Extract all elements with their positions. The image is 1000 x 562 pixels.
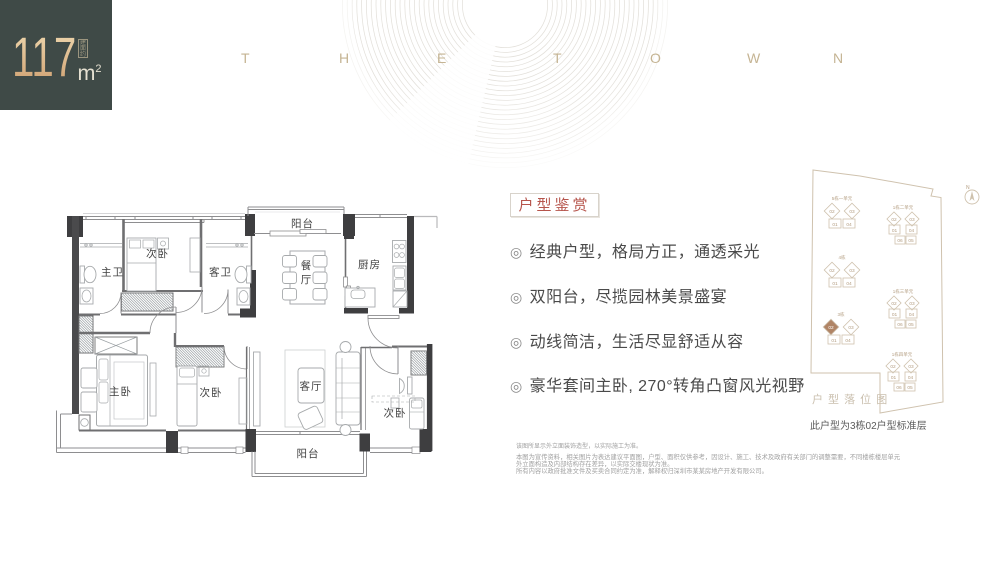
svg-text:厨房: 厨房	[358, 258, 381, 271]
svg-text:02: 02	[829, 268, 835, 274]
svg-text:1栋四单元: 1栋四单元	[892, 351, 913, 358]
svg-text:02: 02	[891, 217, 897, 223]
svg-text:4栋: 4栋	[838, 254, 846, 261]
svg-text:06: 06	[897, 238, 903, 244]
svg-text:主卧: 主卧	[109, 385, 132, 398]
svg-text:05: 05	[908, 238, 914, 244]
svg-text:5栋一单元: 5栋一单元	[832, 195, 853, 202]
svg-text:1栋二单元: 1栋二单元	[893, 204, 914, 211]
svg-text:04: 04	[846, 222, 852, 228]
svg-text:04: 04	[846, 281, 852, 287]
svg-text:01: 01	[831, 338, 837, 344]
svg-text:04: 04	[909, 228, 915, 234]
svg-text:05: 05	[907, 385, 913, 391]
svg-text:客卫: 客卫	[209, 266, 232, 279]
svg-text:厅: 厅	[301, 274, 312, 286]
svg-text:02: 02	[829, 209, 835, 215]
svg-text:06: 06	[897, 322, 903, 328]
svg-text:05: 05	[908, 322, 914, 328]
svg-text:03: 03	[909, 217, 915, 223]
svg-text:01: 01	[891, 375, 897, 381]
svg-text:餐: 餐	[301, 259, 312, 272]
svg-text:1栋三单元: 1栋三单元	[893, 288, 914, 295]
svg-text:次卧: 次卧	[384, 407, 407, 420]
svg-text:02: 02	[828, 325, 834, 331]
svg-text:04: 04	[845, 338, 851, 344]
svg-text:03: 03	[909, 301, 915, 307]
svg-text:06: 06	[896, 385, 902, 391]
svg-text:04: 04	[908, 375, 914, 381]
svg-text:阳台: 阳台	[297, 447, 320, 460]
svg-text:02: 02	[891, 301, 897, 307]
svg-text:客厅: 客厅	[300, 380, 323, 393]
svg-text:主卫: 主卫	[101, 267, 124, 279]
svg-text:03: 03	[908, 364, 914, 370]
svg-text:02: 02	[890, 364, 896, 370]
svg-text:03: 03	[848, 325, 854, 331]
svg-text:03: 03	[849, 268, 855, 274]
svg-text:01: 01	[892, 312, 898, 318]
svg-text:N: N	[966, 185, 970, 191]
svg-text:04: 04	[909, 312, 915, 318]
svg-text:次卧: 次卧	[146, 247, 169, 260]
svg-text:01: 01	[892, 228, 898, 234]
svg-text:3栋: 3栋	[837, 311, 845, 318]
svg-text:03: 03	[849, 209, 855, 215]
svg-text:01: 01	[832, 222, 838, 228]
svg-text:阳台: 阳台	[291, 217, 314, 230]
svg-text:次卧: 次卧	[200, 386, 223, 399]
svg-text:01: 01	[832, 281, 838, 287]
